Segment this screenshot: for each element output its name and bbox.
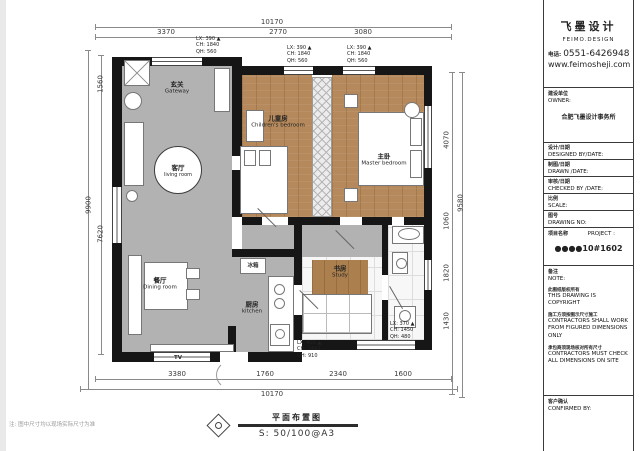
- titleblock-field: 设计/日期DESIGNED BY/DATE:: [544, 143, 633, 160]
- confirmed-label-cn: 客户确认: [548, 398, 629, 405]
- project-value: ●●●●10#1602: [548, 244, 629, 253]
- window-spec-line: CH: 1840: [347, 51, 371, 57]
- window-spec-line: CH: 1840: [287, 51, 311, 57]
- window-spec-tag: LX: 370 ▲CH: 1450QH: 480: [390, 321, 414, 340]
- field-label-cn: 图号: [548, 212, 629, 219]
- confirmed-label-en: CONFIRMED BY:: [548, 406, 629, 412]
- room-name-cn: 书房: [332, 265, 348, 273]
- sink-bowl: [275, 329, 285, 339]
- window: [152, 57, 202, 66]
- titleblock-field: 制图/日期DRAWN /DATE:: [544, 160, 633, 177]
- room-name-cn: 厨房: [242, 301, 262, 309]
- dimension-label: 1760: [256, 371, 274, 378]
- room-label: 餐厅Dining room: [143, 277, 177, 292]
- fields-section: 设计/日期DESIGNED BY/DATE:制图/日期DRAWN /DATE:审…: [544, 143, 633, 228]
- dimension-label: 10170: [261, 19, 283, 26]
- window-spec-line: CH: 1450: [390, 327, 414, 333]
- room-label: 儿童房Children's bedroom: [251, 115, 305, 130]
- window-spec-tag: LX: 420 ▲CH: 1440QH: 910: [297, 340, 321, 359]
- entry-door-arc: [216, 360, 250, 390]
- sofa: [124, 122, 144, 186]
- wall-segment: [242, 66, 284, 75]
- dim-line-bottom-segments: [95, 379, 452, 380]
- wall-segment: [294, 225, 302, 285]
- dimension-label: 2770: [269, 29, 287, 36]
- field-label-en: DRAWING NO:: [548, 220, 629, 226]
- room-name-en: Master bedroom: [361, 161, 406, 168]
- brand-name-en: FEIMO.DESIGN: [548, 37, 629, 43]
- field-label-en: DESIGNED BY/DATE:: [548, 152, 629, 158]
- ac-unit: [404, 102, 420, 118]
- window: [284, 66, 313, 75]
- dimension-label: 10170: [261, 391, 283, 398]
- floor-plan: 1017033702770308033801760234016001017099…: [0, 0, 543, 451]
- dimension-label: 2340: [329, 371, 347, 378]
- wall-segment: [242, 217, 262, 225]
- titleblock-field: 比例SCALE:: [544, 194, 633, 211]
- dimension-label: 1820: [444, 264, 451, 282]
- washer: [124, 60, 150, 86]
- note-item: 承包商须现场核对所有尺寸CONTRACTORS MUST CHECK ALL D…: [548, 345, 629, 365]
- dimension-label: 1600: [394, 371, 412, 378]
- child-pillow: [259, 150, 271, 166]
- field-label-en: DRAWN /DATE:: [548, 169, 629, 175]
- wall-segment: [424, 168, 432, 260]
- project-label-en: PROJECT :: [588, 231, 615, 237]
- entry-basin: [124, 92, 142, 110]
- wall-segment: [294, 315, 302, 340]
- toilet-bowl: [396, 258, 407, 269]
- note-items: 此图纸版权所有THIS DRAWING IS COPYRIGHT施工方须按图示尺…: [548, 287, 629, 365]
- titleblock-field: 图号DRAWING NO:: [544, 211, 633, 228]
- dimension-label: 1560: [98, 75, 105, 93]
- entry-cabinet: [214, 68, 230, 112]
- window: [343, 66, 375, 75]
- window-spec-line: QH: 560: [196, 49, 220, 55]
- window-spec-tag: LX: 390 ▲CH: 1840QH: 560: [196, 36, 220, 55]
- dimension-label: 9580: [458, 194, 465, 212]
- confirmed-section: 客户确认 CONFIRMED BY:: [544, 396, 633, 451]
- dimension-label: 3380: [168, 371, 186, 378]
- dim-line-top-segments: [95, 37, 452, 38]
- owner-value: 合肥飞墨设计事务所: [548, 112, 629, 121]
- phone-number: 0551-6426948: [563, 49, 629, 59]
- dimension-label: 3080: [354, 29, 372, 36]
- window-spec-line: CH: 1440: [297, 346, 321, 352]
- phone-label: 电话:: [548, 52, 561, 58]
- owner-label-en: OWNER:: [548, 98, 629, 104]
- room-name-en: Dining room: [143, 285, 177, 292]
- dim-line-right-overall: [462, 72, 463, 398]
- room-label: 玄关Gateway: [165, 81, 189, 96]
- window-spec-line: QH: 560: [347, 58, 371, 64]
- dimension-label: 4070: [444, 131, 451, 149]
- side-table: [126, 190, 138, 202]
- nightstand: [344, 94, 358, 108]
- owner-section: 建设单位 OWNER: 合肥飞墨设计事务所: [544, 88, 633, 143]
- child-pillow: [244, 150, 256, 166]
- dimension-label: 3370: [157, 29, 175, 36]
- window-spec-tag: LX: 390 ▲CH: 1840QH: 560: [347, 45, 371, 64]
- wall-segment: [404, 217, 432, 225]
- project-label-cn: 项目名称: [548, 230, 568, 237]
- room-label: 主卧Master bedroom: [361, 153, 406, 168]
- note-item-en: CONTRACTORS SHALL WORK FROM FIGURED DIME…: [548, 318, 629, 339]
- wall-segment: [382, 300, 388, 340]
- dimension-label: 1430: [444, 312, 451, 330]
- drawing-scale: S: 50/100@A3: [259, 429, 335, 439]
- room-name-en: Children's bedroom: [251, 123, 305, 130]
- wall-segment: [248, 352, 302, 362]
- note-item-en: THIS DRAWING IS COPYRIGHT: [548, 293, 629, 307]
- room-name-cn: 客厅: [172, 162, 185, 172]
- title-block: 飞墨设计 FEIMO.DESIGN 电话:0551-6426948 www.fe…: [543, 0, 634, 451]
- drawing-title: 平面布置图: [272, 412, 322, 423]
- owner-label-cn: 建设单位: [548, 90, 629, 97]
- window: [424, 260, 432, 290]
- wall-segment: [202, 57, 242, 66]
- dimension-label: 1060: [444, 212, 451, 230]
- field-label-en: SCALE:: [548, 203, 629, 209]
- wall-segment: [210, 352, 220, 362]
- note-item: 此图纸版权所有THIS DRAWING IS COPYRIGHT: [548, 287, 629, 307]
- wall-segment: [112, 352, 154, 362]
- wall-segment: [382, 225, 388, 275]
- window: [424, 106, 432, 168]
- room-label: 书房Study: [332, 265, 348, 280]
- wall-segment: [313, 66, 343, 75]
- window: [357, 340, 415, 350]
- wall-segment: [424, 66, 432, 106]
- dining-bench: [128, 255, 142, 335]
- room-name-en: living room: [164, 172, 192, 178]
- nightstand: [344, 188, 358, 202]
- room-name-en: Gateway: [165, 89, 189, 96]
- footnote: 注: 图中尺寸均以现场实际尺寸为准: [9, 420, 95, 428]
- brand-phone: 电话:0551-6426948: [548, 49, 629, 59]
- room-name-en: Study: [332, 273, 348, 280]
- chair: [186, 268, 200, 279]
- dimension-label: 7620: [98, 225, 105, 243]
- note-label-cn: 备注: [548, 268, 629, 275]
- closet-hatch: [312, 77, 332, 217]
- dim-line-left-overall: [88, 50, 89, 390]
- window-spec-tag: LX: 390 ▲CH: 1840QH: 560: [287, 45, 311, 64]
- wall-segment: [424, 290, 432, 350]
- room-name-en: kitchen: [242, 309, 262, 316]
- brand-website: www.feimosheji.com: [548, 60, 629, 69]
- wall-segment: [288, 217, 340, 225]
- dimension-label: 9900: [86, 196, 93, 214]
- room-label: 厨房kitchen: [242, 301, 262, 316]
- room-label-circle: 客厅living room: [154, 146, 202, 194]
- chair: [186, 289, 200, 300]
- note-section: 备注 NOTE: 此图纸版权所有THIS DRAWING IS COPYRIGH…: [544, 266, 633, 396]
- note-item-en: CONTRACTORS MUST CHECK ALL DIMENSIONS ON…: [548, 351, 629, 365]
- field-label-cn: 制图/日期: [548, 161, 629, 168]
- window: [112, 187, 122, 243]
- field-label-cn: 比例: [548, 195, 629, 202]
- bath-basin: [398, 228, 420, 240]
- room-name-cn: 玄关: [165, 81, 189, 89]
- room-name-cn: 儿童房: [251, 115, 305, 123]
- stove-burner: [274, 298, 285, 309]
- wall-segment: [232, 249, 294, 257]
- field-label-en: CHECKED BY /DATE:: [548, 186, 629, 192]
- brand-name-cn: 飞墨设计: [548, 18, 629, 34]
- dim-line-left-segments: [101, 55, 102, 355]
- window-spec-line: CH: 1840: [196, 42, 220, 48]
- title-underline: [238, 424, 358, 427]
- wall-segment: [232, 66, 242, 156]
- wall-segment: [112, 57, 122, 187]
- window-spec-line: QH: 480: [390, 334, 414, 340]
- wall-segment: [112, 243, 122, 362]
- stove-burner: [274, 284, 285, 295]
- project-section: 项目名称 PROJECT : ●●●●10#1602: [544, 228, 633, 266]
- dim-line-right-segments: [452, 72, 453, 395]
- room-name-cn: 餐厅: [143, 277, 177, 285]
- master-pillow: [410, 118, 422, 146]
- study-desk: [302, 294, 372, 334]
- appliance-label: TV: [174, 355, 182, 361]
- appliance-label: 冰箱: [247, 261, 258, 269]
- titleblock-field: 审核/日期CHECKED BY /DATE:: [544, 177, 633, 194]
- note-label-en: NOTE:: [548, 276, 629, 282]
- wall-segment: [362, 217, 392, 225]
- window-spec-line: QH: 560: [287, 58, 311, 64]
- note-item: 施工方须按图示尺寸施工CONTRACTORS SHALL WORK FROM F…: [548, 312, 629, 339]
- master-pillow: [410, 150, 422, 178]
- tv-console: [150, 344, 234, 352]
- field-label-cn: 审核/日期: [548, 178, 629, 185]
- field-label-cn: 设计/日期: [548, 144, 629, 151]
- room-name-cn: 主卧: [361, 153, 406, 161]
- window-spec-line: QH: 910: [297, 353, 321, 359]
- brand-section: 飞墨设计 FEIMO.DESIGN 电话:0551-6426948 www.fe…: [544, 0, 633, 88]
